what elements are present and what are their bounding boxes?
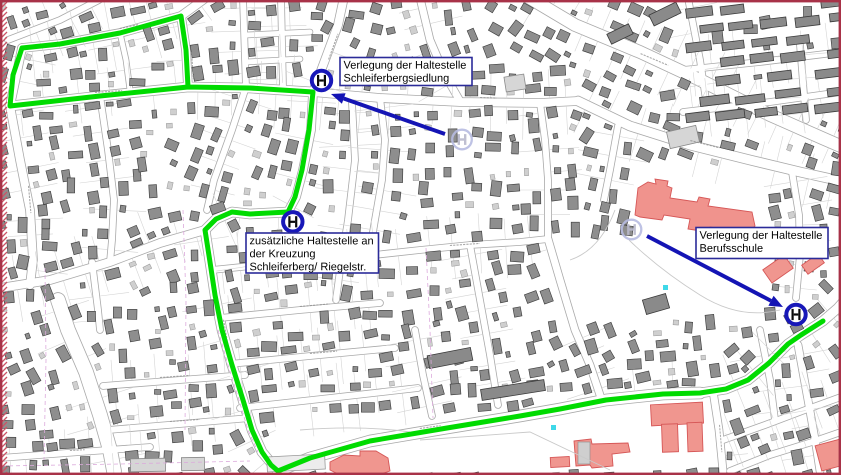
svg-text:Schleiferbergsiedlung: Schleiferbergsiedlung [343, 73, 449, 85]
svg-text:Verlegung der Haltestelle: Verlegung der Haltestelle [343, 60, 466, 72]
svg-text:der Kreuzung: der Kreuzung [249, 248, 315, 260]
svg-text:Verlegung der Haltestelle: Verlegung der Haltestelle [700, 230, 823, 242]
svg-text:Schleiferberg/ Riegelstr.: Schleiferberg/ Riegelstr. [249, 261, 366, 273]
svg-text:Berufsschule: Berufsschule [699, 243, 763, 255]
svg-text:zusätzliche Haltestelle an: zusätzliche Haltestelle an [250, 235, 374, 247]
